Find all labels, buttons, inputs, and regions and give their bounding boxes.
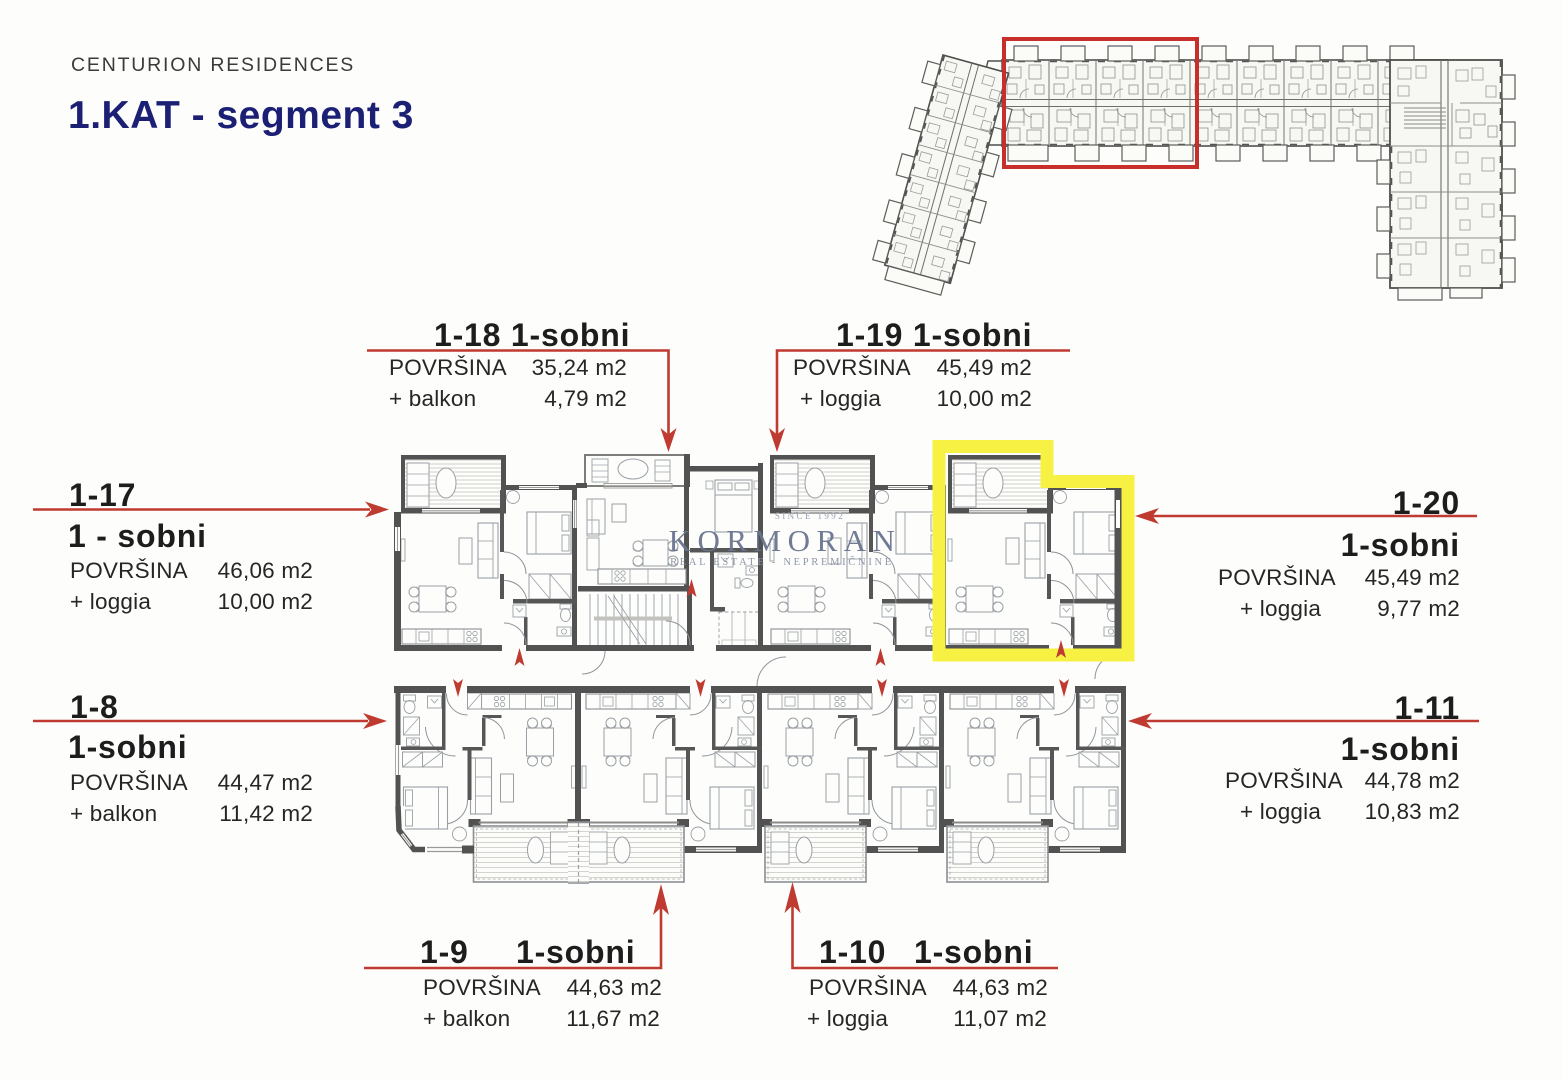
svg-text:KORMORAN: KORMORAN bbox=[669, 523, 902, 558]
svg-text:SINCE 1992: SINCE 1992 bbox=[775, 511, 845, 521]
svg-text:REAL ESTATE - NEPREMIČNINE: REAL ESTATE - NEPREMIČNINE bbox=[670, 556, 894, 568]
